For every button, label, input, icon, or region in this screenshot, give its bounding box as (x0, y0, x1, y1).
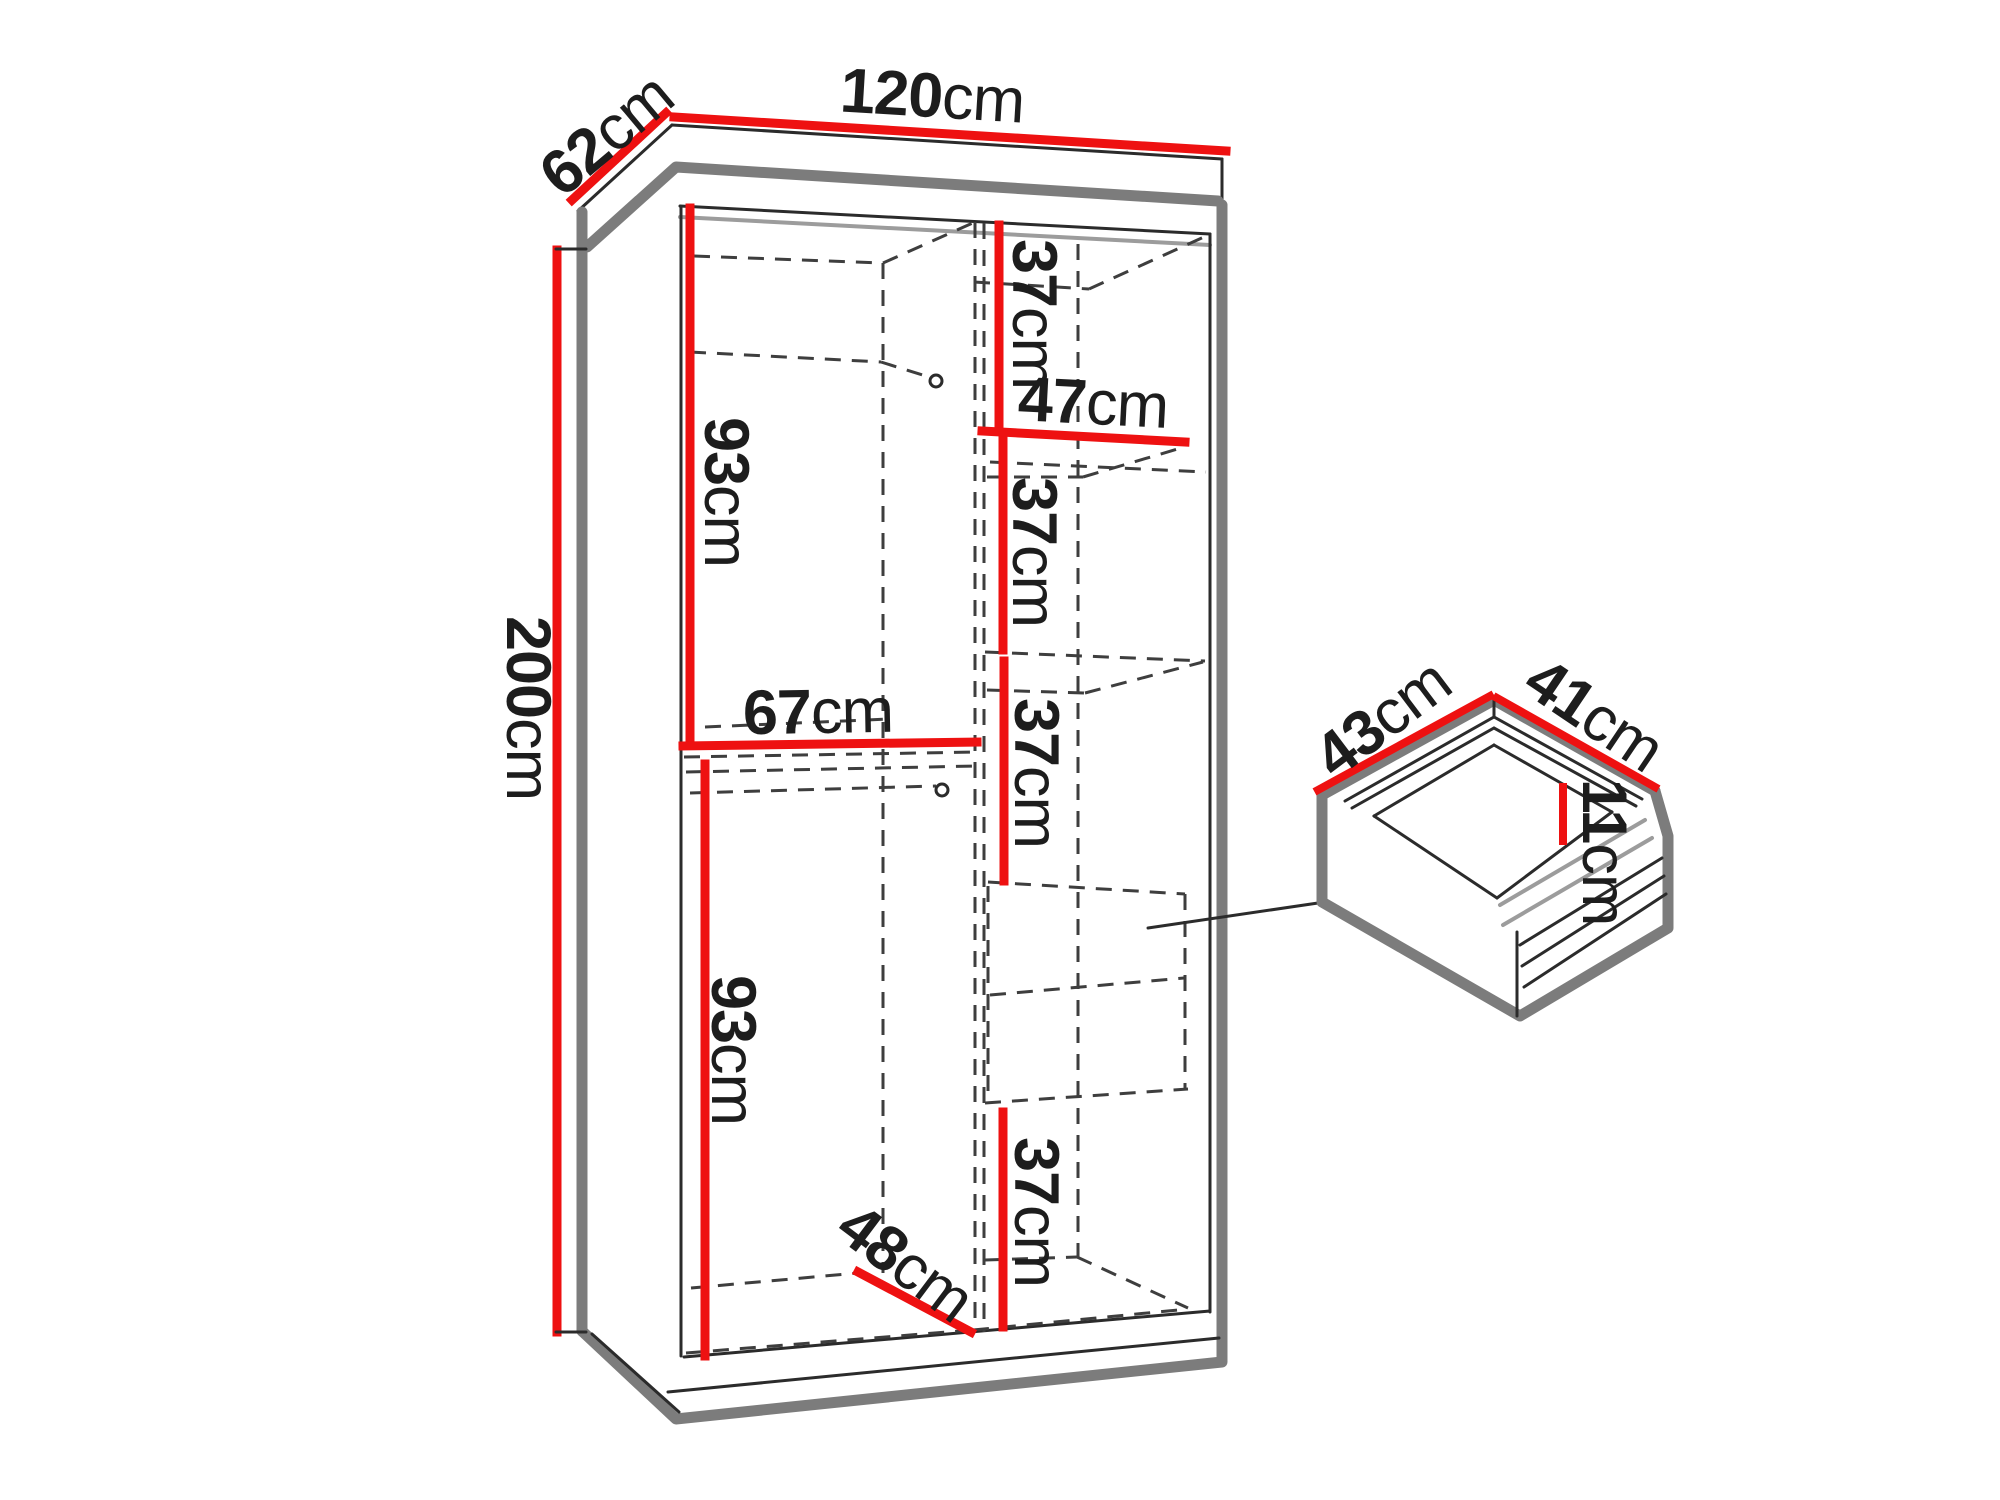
dim-label-drawer-height: 11cm (1569, 779, 1639, 926)
diagram-canvas: 120cm 62cm 200cm 93cm 67cm 93cm 48cm 37c… (0, 0, 2000, 1500)
left-compartment-dashed-lines (684, 222, 977, 1353)
wardrobe-dimension-diagram: 120cm 62cm 200cm 93cm 67cm 93cm 48cm 37c… (0, 0, 2000, 1500)
dim-label-width: 120cm (838, 55, 1026, 136)
dim-label-section-4: 37cm (1001, 1137, 1071, 1287)
rail-bracket-hook (930, 375, 942, 387)
dim-label-section-3: 37cm (1001, 698, 1071, 848)
dim-label-left-shelf: 67cm (742, 675, 893, 748)
drawer-pointer-line (1148, 903, 1318, 928)
dim-label-left-depth: 48cm (825, 1189, 987, 1335)
dim-label-height: 200cm (493, 616, 563, 800)
dim-label-right-shelf: 47cm (1016, 364, 1170, 442)
rail-bracket-hook (936, 784, 948, 796)
dim-label-section-2: 37cm (999, 477, 1069, 627)
dim-label-left-lower: 93cm (698, 975, 768, 1125)
dim-label-left-upper: 93cm (691, 417, 761, 567)
